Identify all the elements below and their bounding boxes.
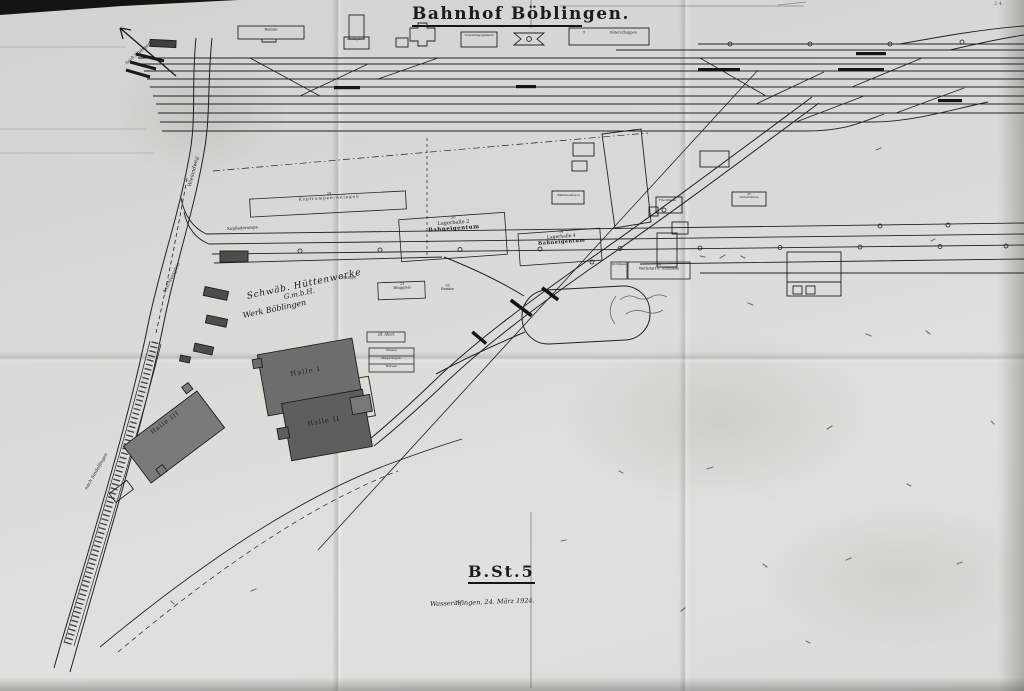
werkstatt-label: 30 Werkstatt u. Schmiede: [629, 263, 689, 271]
gueterschuppen-number: 5: [583, 31, 585, 35]
handwritten-scribble: [610, 295, 667, 324]
gueterschuppen-label: 5 Güterschuppen: [571, 31, 649, 35]
track-lines-middle: [181, 198, 1024, 273]
werkstatt-name: Werkstatt u. Schmiede: [629, 267, 689, 271]
dienstgeb-label: Dienstgeb. 4: [344, 38, 368, 41]
oelhaus-label: Ölhaus: [370, 349, 413, 352]
remise-top-label: Remise: [239, 28, 303, 32]
remise-label: 26 Remise: [430, 284, 465, 292]
ringgleis-label: 23 Ringgleis: [379, 281, 425, 290]
plan-sheet: Bahnhof Böblingen. 2 4 B.St.5 Wasseralfi…: [0, 0, 1024, 691]
werkstatt-annex-label: Wohnhaus: [611, 263, 627, 266]
bahnmeisterei-label: Bahnmeisterei: [553, 194, 584, 197]
road: [54, 38, 212, 672]
direction-arrow: [120, 28, 176, 77]
plan-number: B.St.5: [468, 563, 535, 584]
gueterschuppen-name: Güterschuppen: [610, 31, 637, 35]
rampe-label: Rampe: [342, 275, 356, 280]
map-title: Bahnhof Böblingen.: [412, 5, 582, 27]
alt-abort-label: alt. Abort: [368, 333, 404, 337]
paper-corner-marks: [0, 0, 806, 688]
frachthalle-label: Frachthalle: [654, 199, 681, 202]
verwaltung-label: Verwaltungsgebäude: [462, 34, 496, 37]
corner-mark: 2 4: [994, 1, 1002, 7]
plan-linework: [0, 0, 1024, 691]
branch-siding-curve: [318, 70, 819, 550]
gueterremise-name: Güterremise: [733, 196, 765, 199]
magazin-label: Magazingeb.: [370, 357, 413, 360]
remise-name: Remise: [430, 288, 465, 292]
gueterremise-label: 38 Güterremise: [733, 193, 765, 199]
bureau-label: Bureau: [370, 365, 413, 368]
